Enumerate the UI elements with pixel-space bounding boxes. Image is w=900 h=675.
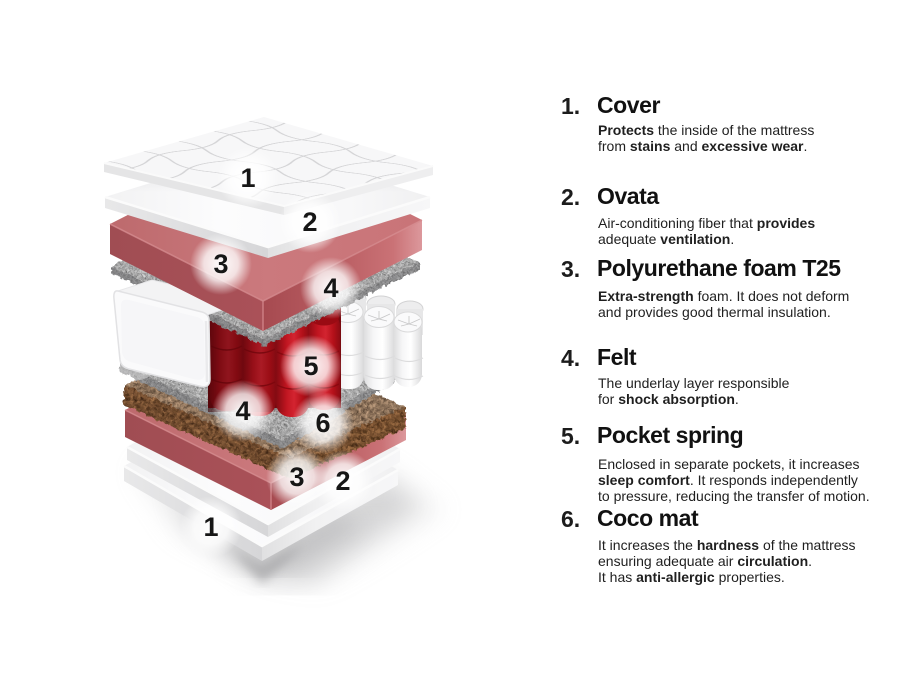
svg-text:2: 2: [302, 207, 317, 237]
svg-text:4: 4: [235, 396, 250, 426]
svg-text:3: 3: [213, 249, 228, 279]
svg-text:6: 6: [315, 408, 330, 438]
svg-text:1: 1: [240, 163, 255, 193]
svg-text:5: 5: [303, 351, 318, 381]
svg-text:2: 2: [335, 466, 350, 496]
svg-text:4: 4: [323, 273, 338, 303]
svg-text:3: 3: [289, 462, 304, 492]
svg-text:1: 1: [203, 512, 218, 542]
